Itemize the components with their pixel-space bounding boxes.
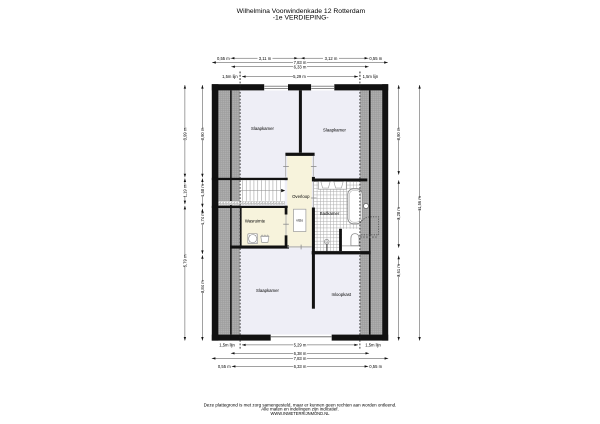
svg-text:0,55 m: 0,55 m: [369, 364, 382, 369]
svg-text:Wasruimte: Wasruimte: [245, 219, 266, 224]
svg-text:0,55 m: 0,55 m: [369, 56, 382, 61]
svg-text:0,55 m: 0,55 m: [217, 56, 230, 61]
svg-text:3,90 m: 3,90 m: [200, 127, 205, 140]
svg-text:3,61 m: 3,61 m: [396, 264, 401, 277]
svg-text:6,33 m: 6,33 m: [294, 364, 307, 369]
svg-text:Slaapkamer: Slaapkamer: [251, 126, 274, 131]
svg-text:Overloop: Overloop: [292, 194, 310, 199]
svg-text:-1e VERDIEPING-: -1e VERDIEPING-: [273, 14, 329, 21]
svg-text:3,90 m: 3,90 m: [396, 127, 401, 140]
svg-text:3,28 m: 3,28 m: [396, 207, 401, 220]
svg-text:1,74 m: 1,74 m: [200, 212, 205, 225]
svg-text:Badkamer: Badkamer: [320, 211, 340, 216]
svg-text:vlizo: vlizo: [296, 219, 303, 223]
svg-text:5,29 m: 5,29 m: [293, 74, 306, 79]
svg-text:0,55 m: 0,55 m: [218, 364, 231, 369]
svg-text:5,79 m: 5,79 m: [182, 254, 187, 267]
svg-text:5,29 m: 5,29 m: [294, 343, 307, 348]
svg-text:3,99 m: 3,99 m: [182, 127, 187, 140]
svg-text:Slaapkamer: Slaapkamer: [323, 128, 346, 133]
svg-text:Inloopkast: Inloopkast: [332, 292, 352, 297]
svg-text:3,84 m: 3,84 m: [200, 280, 205, 293]
svg-text:6,33 m: 6,33 m: [294, 64, 307, 69]
svg-text:WWW.INMETERRIJNMOND.NL: WWW.INMETERRIJNMOND.NL: [271, 411, 331, 416]
svg-text:1,5m lijn: 1,5m lijn: [219, 343, 235, 348]
svg-text:1,19 m: 1,19 m: [182, 184, 187, 197]
svg-text:1,58 m: 1,58 m: [200, 184, 205, 197]
svg-text:7,83 m: 7,83 m: [294, 356, 307, 361]
svg-text:11,56 m: 11,56 m: [417, 196, 422, 211]
svg-text:Slaapkamer: Slaapkamer: [256, 288, 279, 293]
svg-text:1,5m lijn: 1,5m lijn: [222, 74, 238, 79]
svg-text:3,12 m: 3,12 m: [325, 56, 338, 61]
svg-text:1,5m lijn: 1,5m lijn: [363, 74, 379, 79]
svg-text:1,5m lijn: 1,5m lijn: [365, 343, 381, 348]
svg-text:3,11 m: 3,11 m: [259, 56, 272, 61]
